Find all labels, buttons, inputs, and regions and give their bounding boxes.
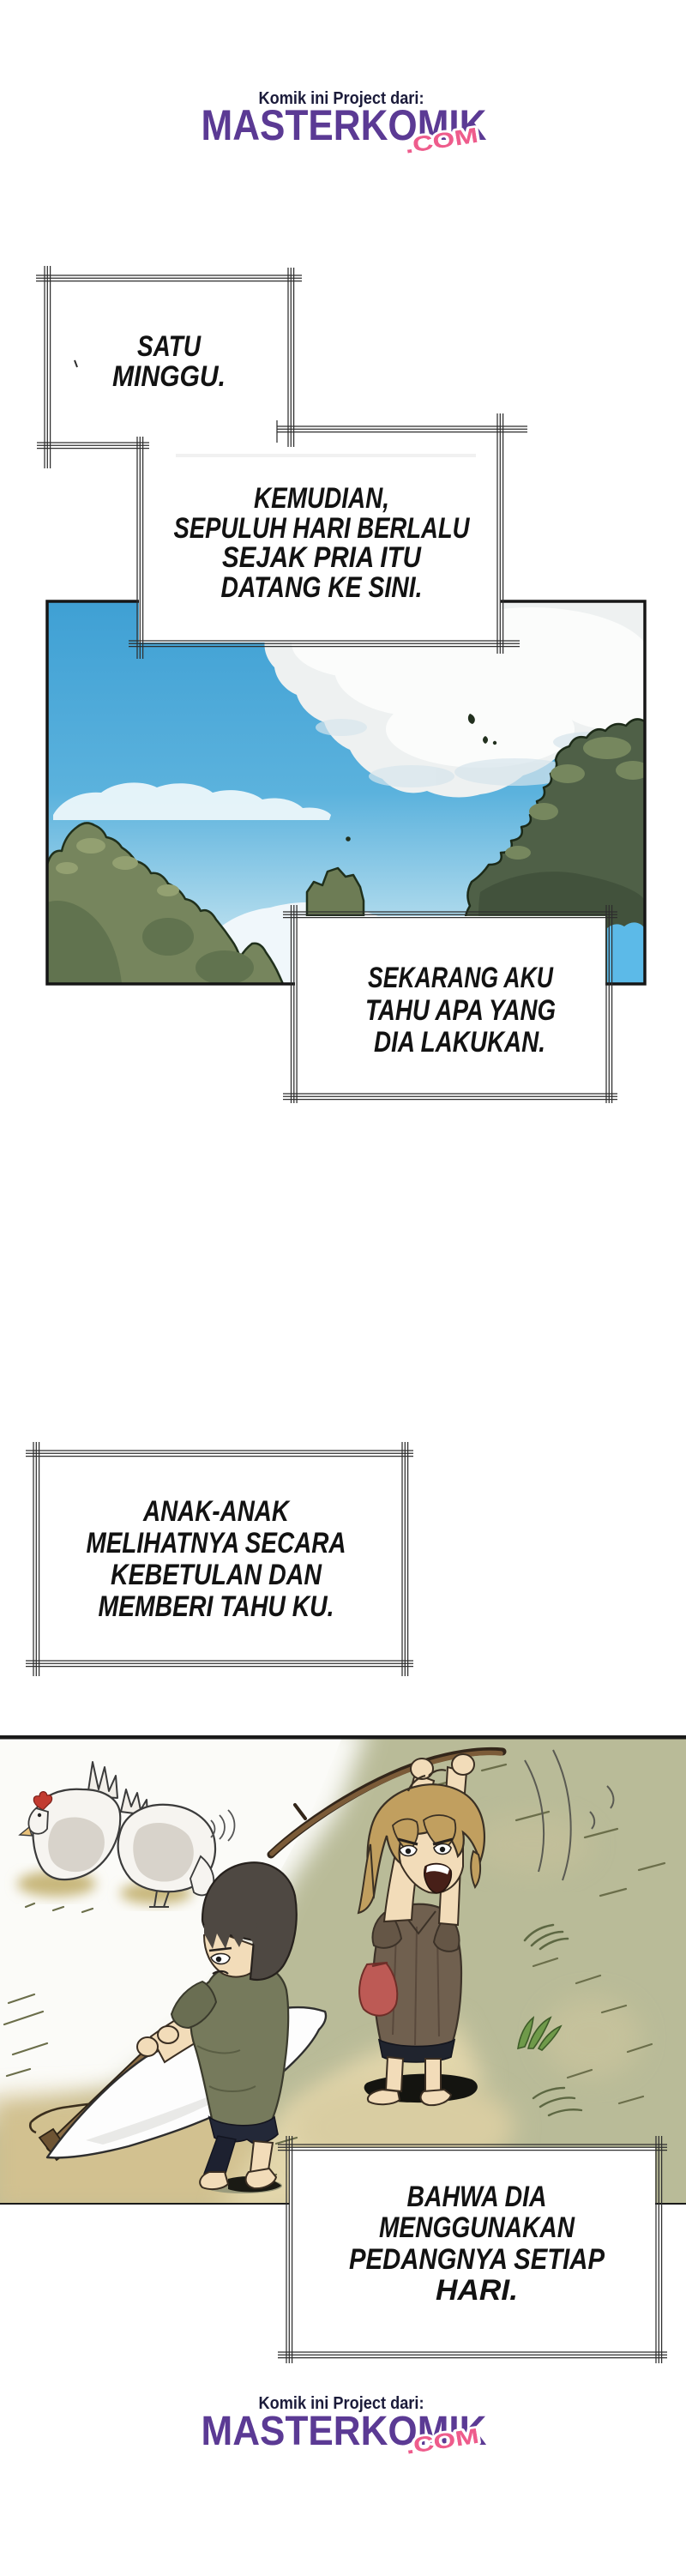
svg-text:MELIHATNYA SECARA: MELIHATNYA SECARA	[87, 1527, 346, 1559]
svg-text:SATU: SATU	[137, 330, 202, 363]
svg-text:DATANG KE SINI.: DATANG KE SINI.	[221, 571, 423, 604]
svg-text:MEMBERI TAHU KU.: MEMBERI TAHU KU.	[99, 1590, 334, 1623]
svg-text:MENGGUNAKAN: MENGGUNAKAN	[379, 2211, 575, 2244]
svg-text:ANAK-ANAK: ANAK-ANAK	[142, 1495, 291, 1528]
svg-text:KEMUDIAN,: KEMUDIAN,	[254, 482, 389, 515]
svg-text:BAHWA DIA: BAHWA DIA	[407, 2181, 547, 2213]
svg-text:SEKARANG AKU: SEKARANG AKU	[368, 962, 554, 994]
svg-text:MINGGU.: MINGGU.	[112, 360, 226, 393]
svg-text:HARI.: HARI.	[436, 2274, 518, 2307]
svg-text:KEBETULAN DAN: KEBETULAN DAN	[111, 1559, 322, 1591]
svg-text:DIA LAKUKAN.: DIA LAKUKAN.	[374, 1026, 545, 1059]
svg-text:SEJAK PRIA ITU: SEJAK PRIA ITU	[222, 541, 422, 574]
svg-text:TAHU APA YANG: TAHU APA YANG	[365, 994, 556, 1027]
svg-text:SEPULUH HARI BERLALU: SEPULUH HARI BERLALU	[174, 512, 471, 545]
svg-text:PEDANGNYA SETIAP: PEDANGNYA SETIAP	[349, 2243, 605, 2276]
